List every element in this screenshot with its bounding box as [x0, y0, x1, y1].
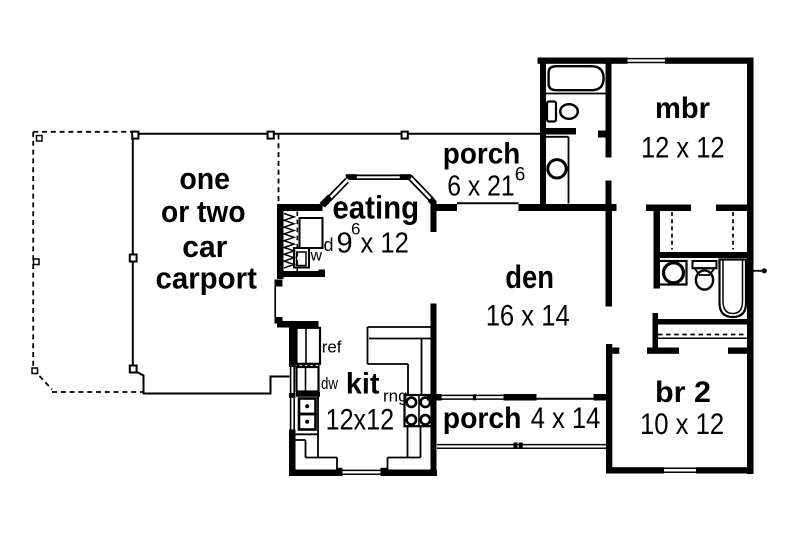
- svg-text:d: d: [324, 235, 334, 255]
- svg-text:br 2: br 2: [655, 376, 711, 409]
- svg-text:6: 6: [351, 220, 360, 239]
- svg-text:x 12: x 12: [361, 228, 409, 260]
- svg-text:porch: porch: [443, 402, 522, 435]
- svg-text:porch: porch: [443, 138, 521, 171]
- svg-text:6 x 21: 6 x 21: [447, 171, 514, 203]
- svg-text:12x12: 12x12: [326, 404, 395, 437]
- svg-text:carport: carport: [156, 261, 257, 296]
- svg-text:12 x 12: 12 x 12: [641, 132, 725, 165]
- svg-text:or two: or two: [161, 194, 246, 229]
- svg-text:mbr: mbr: [655, 92, 710, 125]
- svg-text:car: car: [182, 229, 227, 264]
- svg-text:dw: dw: [321, 374, 339, 393]
- svg-text:w: w: [310, 248, 323, 265]
- svg-text:4 x 14: 4 x 14: [531, 402, 601, 435]
- svg-text:ref: ref: [322, 338, 342, 357]
- svg-text:den: den: [505, 259, 554, 295]
- svg-text:eating: eating: [332, 190, 419, 226]
- svg-text:16 x 14: 16 x 14: [486, 300, 570, 333]
- svg-text:6: 6: [515, 165, 526, 186]
- svg-text:kit: kit: [346, 368, 380, 401]
- svg-text:10 x 12: 10 x 12: [640, 408, 724, 441]
- svg-text:one: one: [179, 161, 230, 196]
